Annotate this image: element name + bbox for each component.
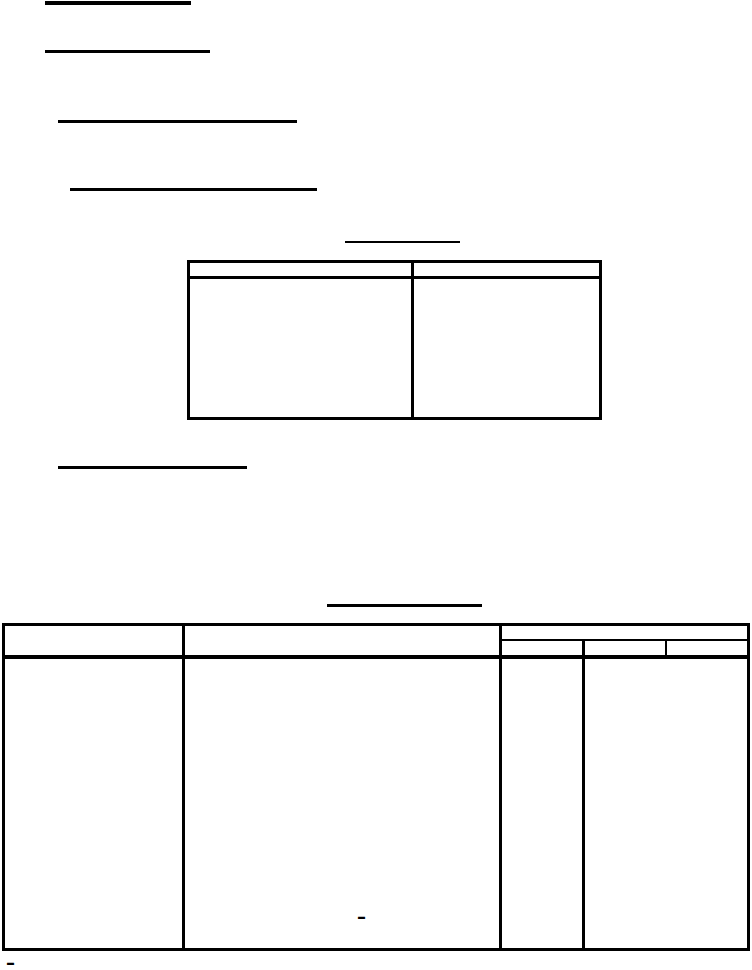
- table2-top-border: [2, 623, 750, 626]
- table2-title-underline: [327, 604, 482, 607]
- table2-col1-divider: [182, 623, 185, 951]
- table2-col2-divider: [499, 623, 502, 951]
- document-page: – –: [0, 0, 752, 970]
- table2-col2-dash: –: [357, 908, 366, 926]
- table1-bottom-border: [187, 417, 602, 420]
- footnote-dash: –: [6, 954, 15, 970]
- table2-bottom-border: [2, 948, 750, 951]
- table1-top-border: [187, 260, 602, 263]
- table2-subcol1-divider: [582, 639, 585, 951]
- table1-left-border: [187, 260, 190, 420]
- heading-3-underline: [58, 120, 297, 123]
- table2-right-border: [747, 623, 750, 951]
- section-underline: [58, 466, 247, 469]
- heading-1-underline: [45, 1, 191, 5]
- table2-subcol2-divider: [665, 639, 667, 657]
- table1-column-divider: [411, 260, 414, 420]
- table2-col3-span-rule: [499, 639, 750, 641]
- table2-header-rule: [2, 655, 750, 659]
- table1-title-underline: [345, 241, 460, 243]
- heading-4-underline: [70, 188, 317, 191]
- table2-left-border: [2, 623, 5, 951]
- table1-right-border: [599, 260, 602, 420]
- heading-2-underline: [45, 50, 210, 53]
- rules-layer: [0, 0, 752, 970]
- table1-header-rule: [187, 276, 602, 279]
